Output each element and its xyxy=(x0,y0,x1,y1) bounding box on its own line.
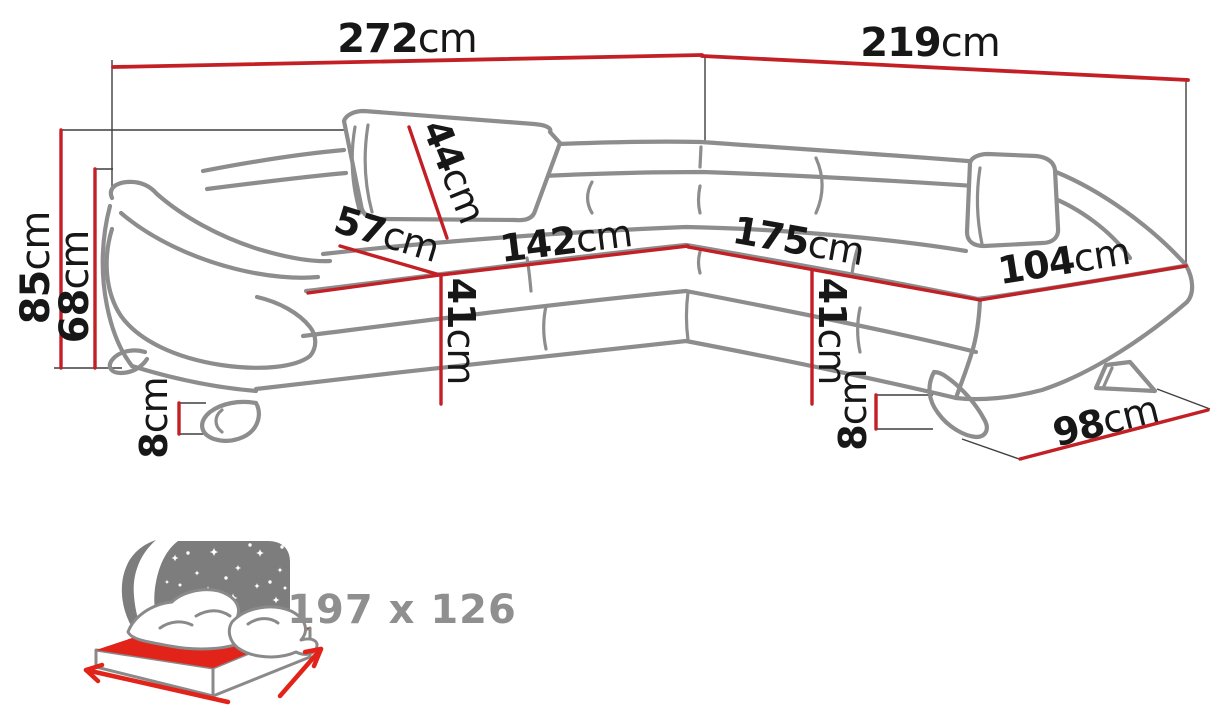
seat-seam xyxy=(699,252,701,273)
dim-label-total-width: 272cm xyxy=(337,16,476,62)
dim-label-seat-height-left: 41cm xyxy=(440,278,484,385)
dim-label-backrest-height: 68cm xyxy=(52,231,98,344)
sofa-dimension-diagram: 272cm 219cm 85cm 68cm 44cm 57cm 142cm 17… xyxy=(0,0,1223,712)
seam-tick xyxy=(699,186,701,213)
dim-label-leg-height-right: 8cm xyxy=(831,369,875,450)
sleeping-area-label: 197 x 126 xyxy=(287,587,517,633)
seam-tick xyxy=(700,147,701,167)
front-panel-tick xyxy=(687,292,689,340)
dim-label-seat-height-right: 41cm xyxy=(811,278,855,385)
dim-label-leg-height-left: 8cm xyxy=(132,377,176,458)
dim-label-total-depth: 219cm xyxy=(860,20,999,66)
